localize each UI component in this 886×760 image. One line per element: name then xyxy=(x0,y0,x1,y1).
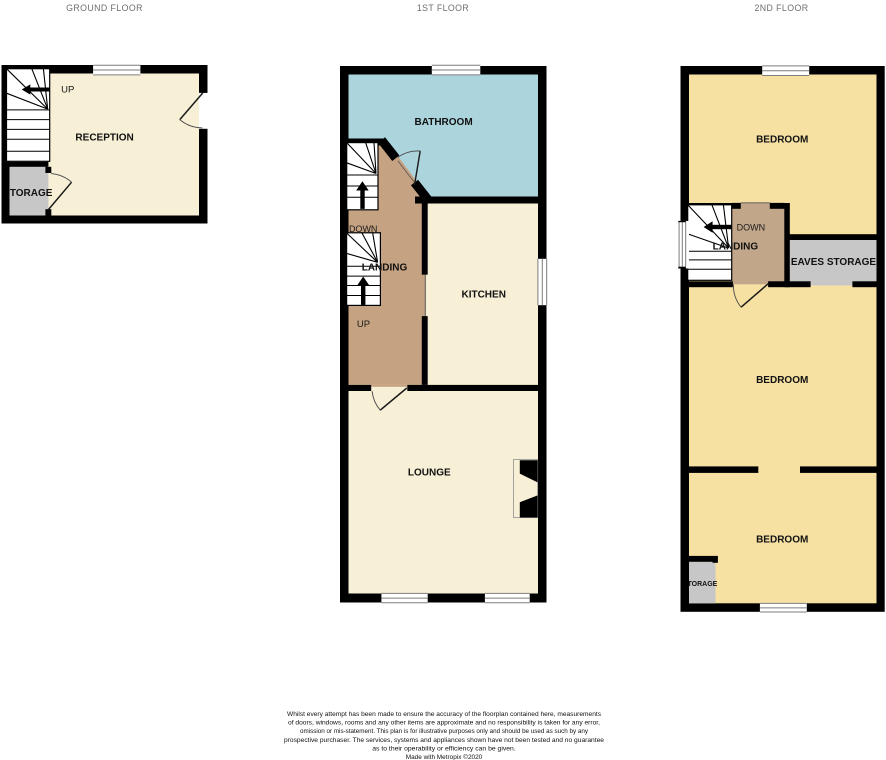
svg-text:LOUNGE: LOUNGE xyxy=(408,467,451,478)
svg-text:BEDROOM: BEDROOM xyxy=(756,375,808,386)
svg-text:RECEPTION: RECEPTION xyxy=(75,133,133,144)
svg-text:STORAGE: STORAGE xyxy=(3,188,53,199)
svg-text:omission or mis-statement. Thi: omission or mis-statement. This plan is … xyxy=(300,728,589,735)
svg-text:LANDING: LANDING xyxy=(362,262,408,273)
svg-text:BEDROOM: BEDROOM xyxy=(756,534,808,545)
svg-text:Made with Metropix ©2020: Made with Metropix ©2020 xyxy=(406,753,483,760)
svg-text:BATHROOM: BATHROOM xyxy=(415,117,473,128)
svg-text:of doors, windows, rooms and a: of doors, windows, rooms and any other i… xyxy=(288,720,600,727)
svg-text:EAVES STORAGE: EAVES STORAGE xyxy=(791,257,877,268)
svg-text:KITCHEN: KITCHEN xyxy=(461,290,505,301)
svg-text:DOWN: DOWN xyxy=(737,222,766,232)
svg-text:prospective purchaser. The ser: prospective purchaser. The services, sys… xyxy=(284,737,604,744)
svg-text:as to their operability or eff: as to their operability or efficiency ca… xyxy=(372,745,516,752)
svg-text:1ST FLOOR: 1ST FLOOR xyxy=(417,3,469,13)
svg-text:2ND FLOOR: 2ND FLOOR xyxy=(755,3,809,13)
svg-text:BEDROOM: BEDROOM xyxy=(756,134,808,145)
svg-text:GROUND FLOOR: GROUND FLOOR xyxy=(66,3,143,13)
svg-text:UP: UP xyxy=(357,319,370,330)
svg-text:UP: UP xyxy=(61,85,74,96)
svg-text:LANDING: LANDING xyxy=(713,242,759,253)
svg-text:Whilst every attempt has been: Whilst every attempt has been made to en… xyxy=(287,711,602,718)
svg-text:DOWN: DOWN xyxy=(349,224,378,234)
